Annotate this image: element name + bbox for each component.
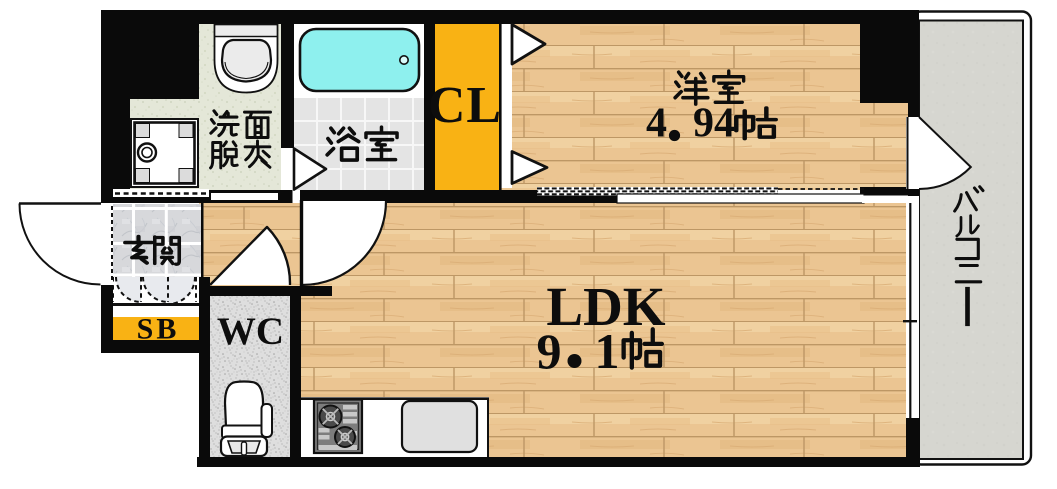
svg-text:SB: SB <box>137 313 180 346</box>
svg-text:9: 9 <box>537 323 562 379</box>
svg-text:CL: CL <box>428 77 502 134</box>
svg-text:WC: WC <box>217 310 284 353</box>
svg-text:1: 1 <box>595 323 620 379</box>
svg-text:94: 94 <box>693 101 735 147</box>
svg-text:4: 4 <box>646 101 667 147</box>
